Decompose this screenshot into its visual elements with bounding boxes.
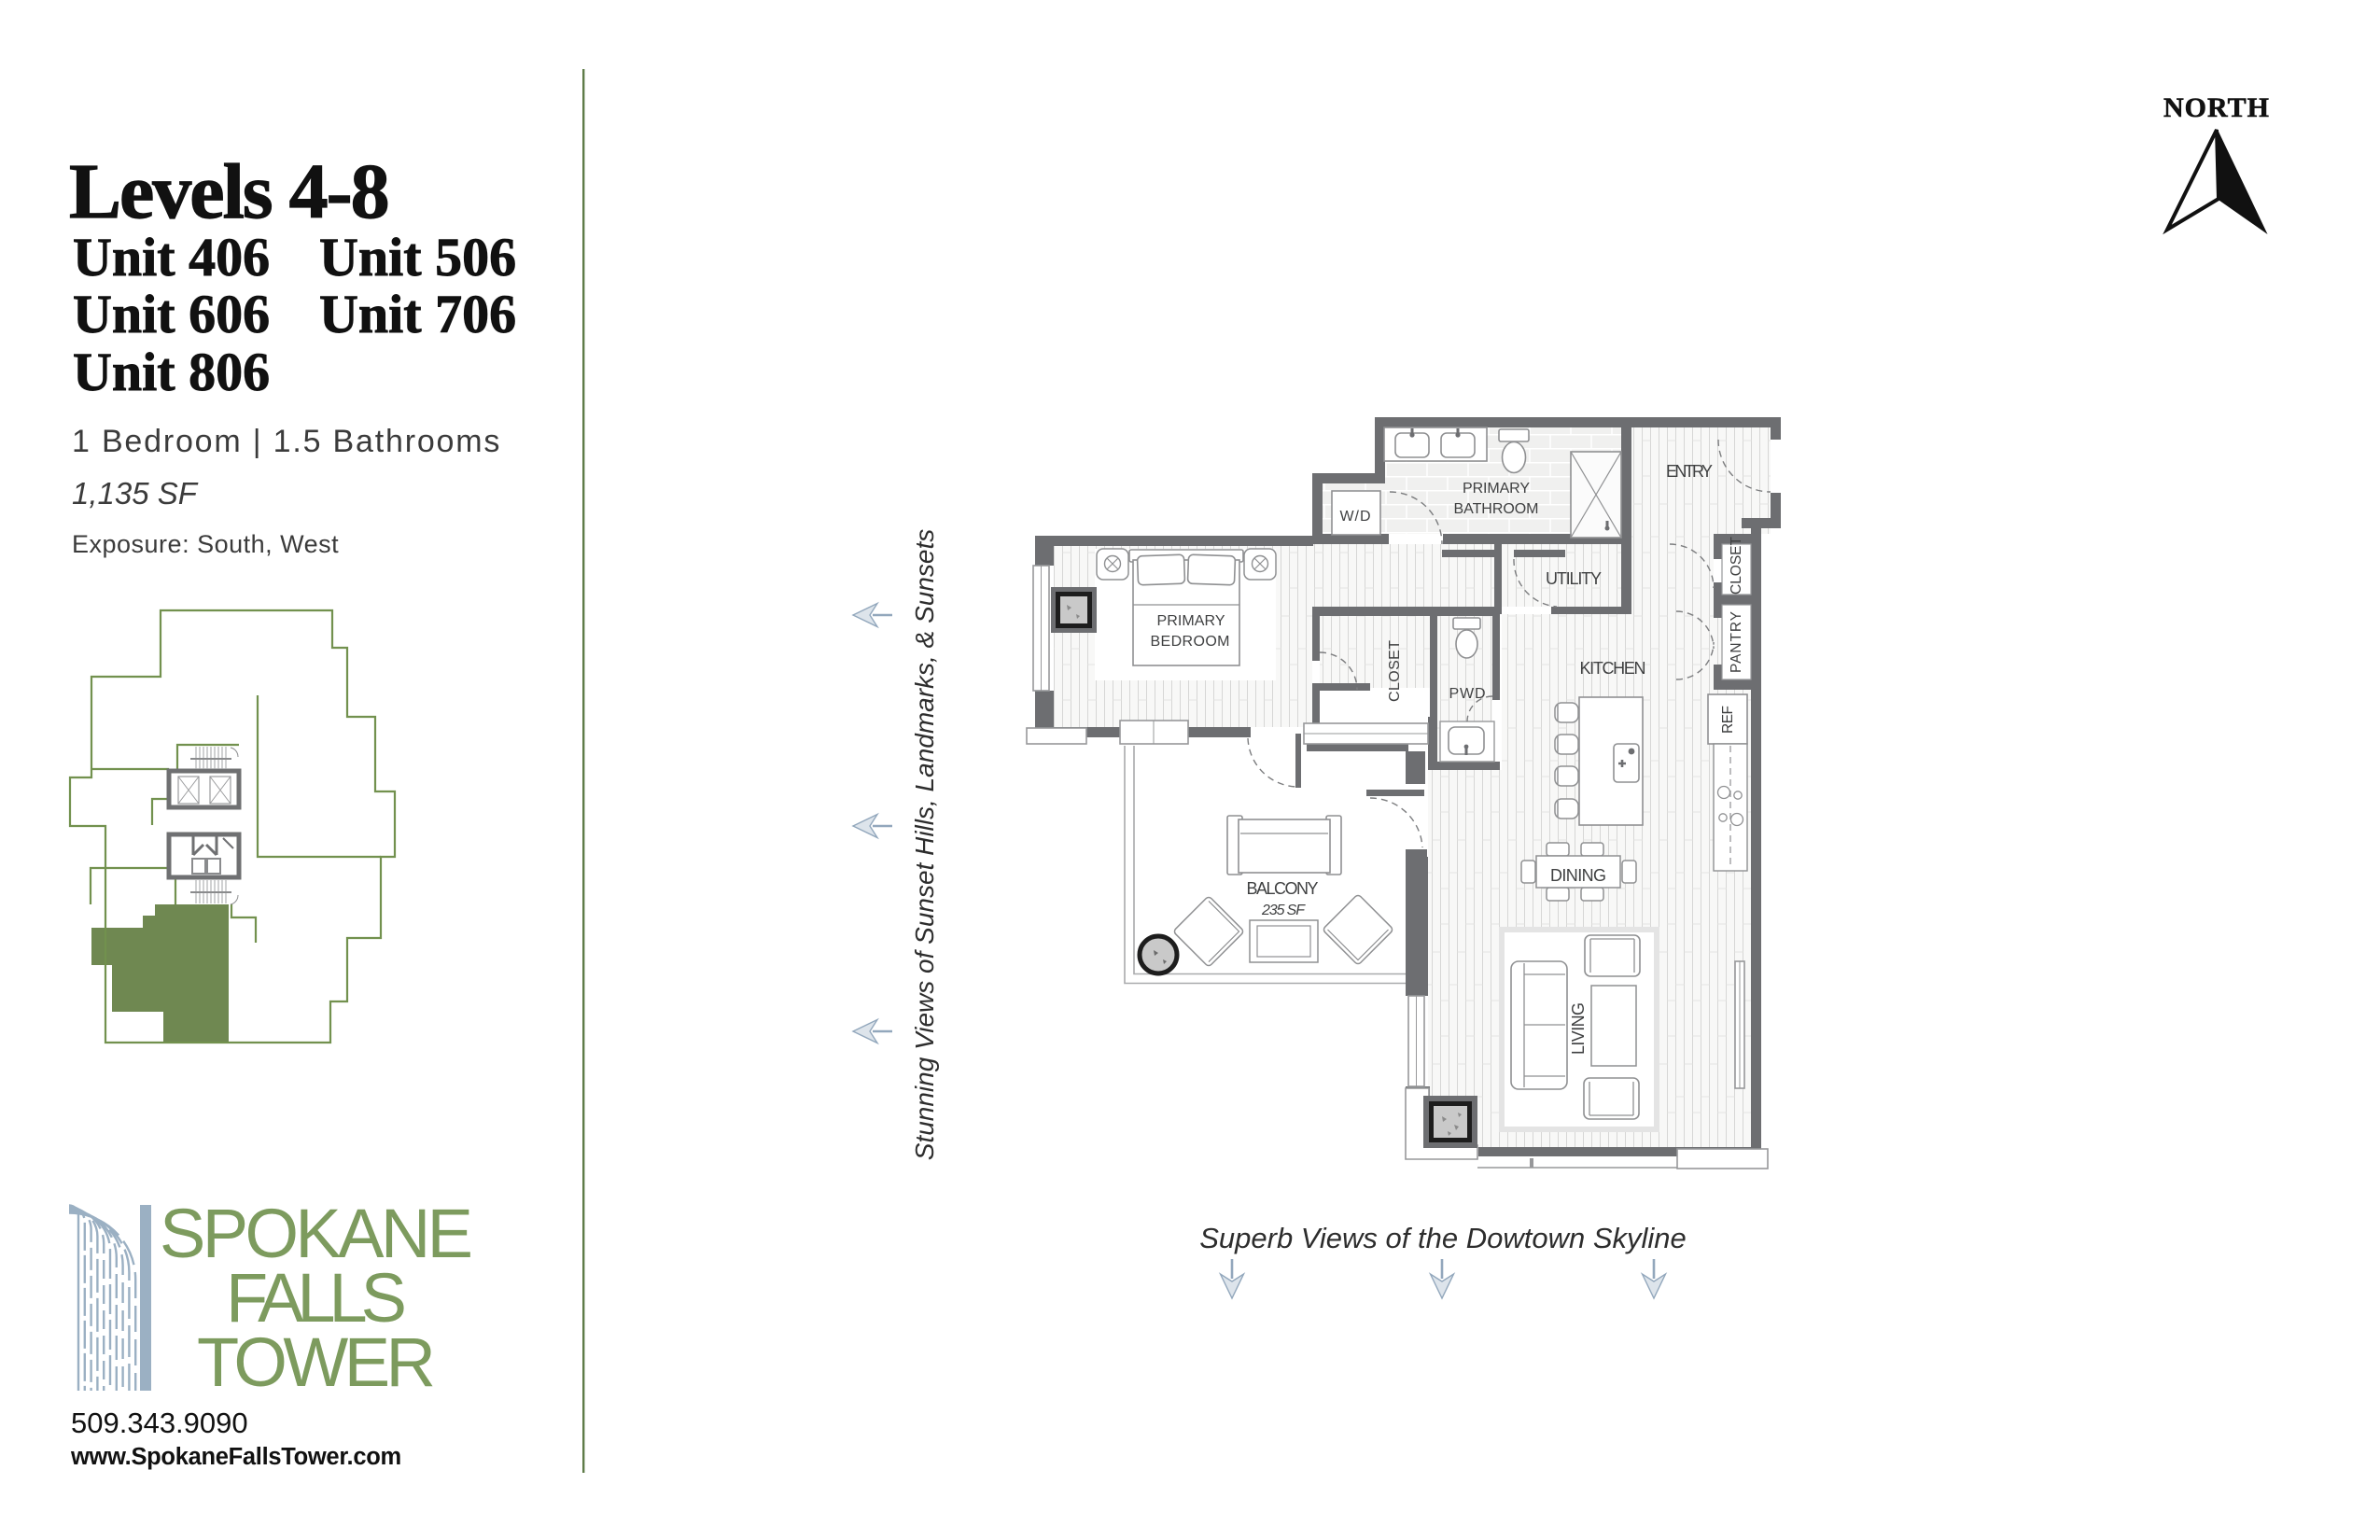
svg-text:www.SpokaneFallsTower.com: www.SpokaneFallsTower.com [70,1444,401,1470]
svg-text:Stunning Views of Sunset Hills: Stunning Views of Sunset Hills, Landmark… [910,529,939,1161]
svg-text:Unit 806: Unit 806 [73,342,270,402]
svg-text:LIVING: LIVING [1569,1002,1588,1055]
svg-text:ENTRY: ENTRY [1666,462,1713,481]
svg-text:1 Bedroom | 1.5 Bathrooms: 1 Bedroom | 1.5 Bathrooms [72,424,501,459]
svg-text:CLOSET: CLOSET [1387,640,1403,702]
svg-text:W/D: W/D [1340,509,1371,525]
svg-text:Superb Views of the Dowtown Sk: Superb Views of the Dowtown Skyline [1199,1222,1687,1254]
svg-text:UTILITY: UTILITY [1546,569,1602,588]
svg-text:CLOSET: CLOSET [1729,536,1744,595]
svg-text:Unit 706: Unit 706 [319,284,516,344]
svg-text:BEDROOM: BEDROOM [1151,634,1230,650]
svg-text:REF: REF [1720,706,1736,734]
svg-text:KITCHEN: KITCHEN [1580,659,1646,678]
svg-text:NORTH: NORTH [2163,92,2270,123]
svg-text:PRIMARY: PRIMARY [1463,481,1530,497]
svg-text:Unit 606: Unit 606 [73,284,270,344]
svg-text:PANTRY: PANTRY [1729,611,1744,673]
svg-text:TOWER: TOWER [197,1323,438,1401]
svg-text:BATHROOM: BATHROOM [1454,501,1539,517]
svg-text:Unit 506: Unit 506 [319,227,516,287]
svg-text:Levels 4-8: Levels 4-8 [69,148,388,235]
svg-text:509.343.9090: 509.343.9090 [71,1407,248,1439]
svg-text:1,135 SF: 1,135 SF [72,476,199,511]
svg-text:Exposure: South, West: Exposure: South, West [72,530,339,558]
svg-text:BALCONY: BALCONY [1247,879,1319,898]
svg-text:Unit 406: Unit 406 [73,227,270,287]
svg-text:DINING: DINING [1550,866,1606,885]
svg-text:235 SF: 235 SF [1261,903,1306,918]
svg-text:PWD: PWD [1449,686,1486,702]
svg-text:PRIMARY: PRIMARY [1157,613,1225,629]
